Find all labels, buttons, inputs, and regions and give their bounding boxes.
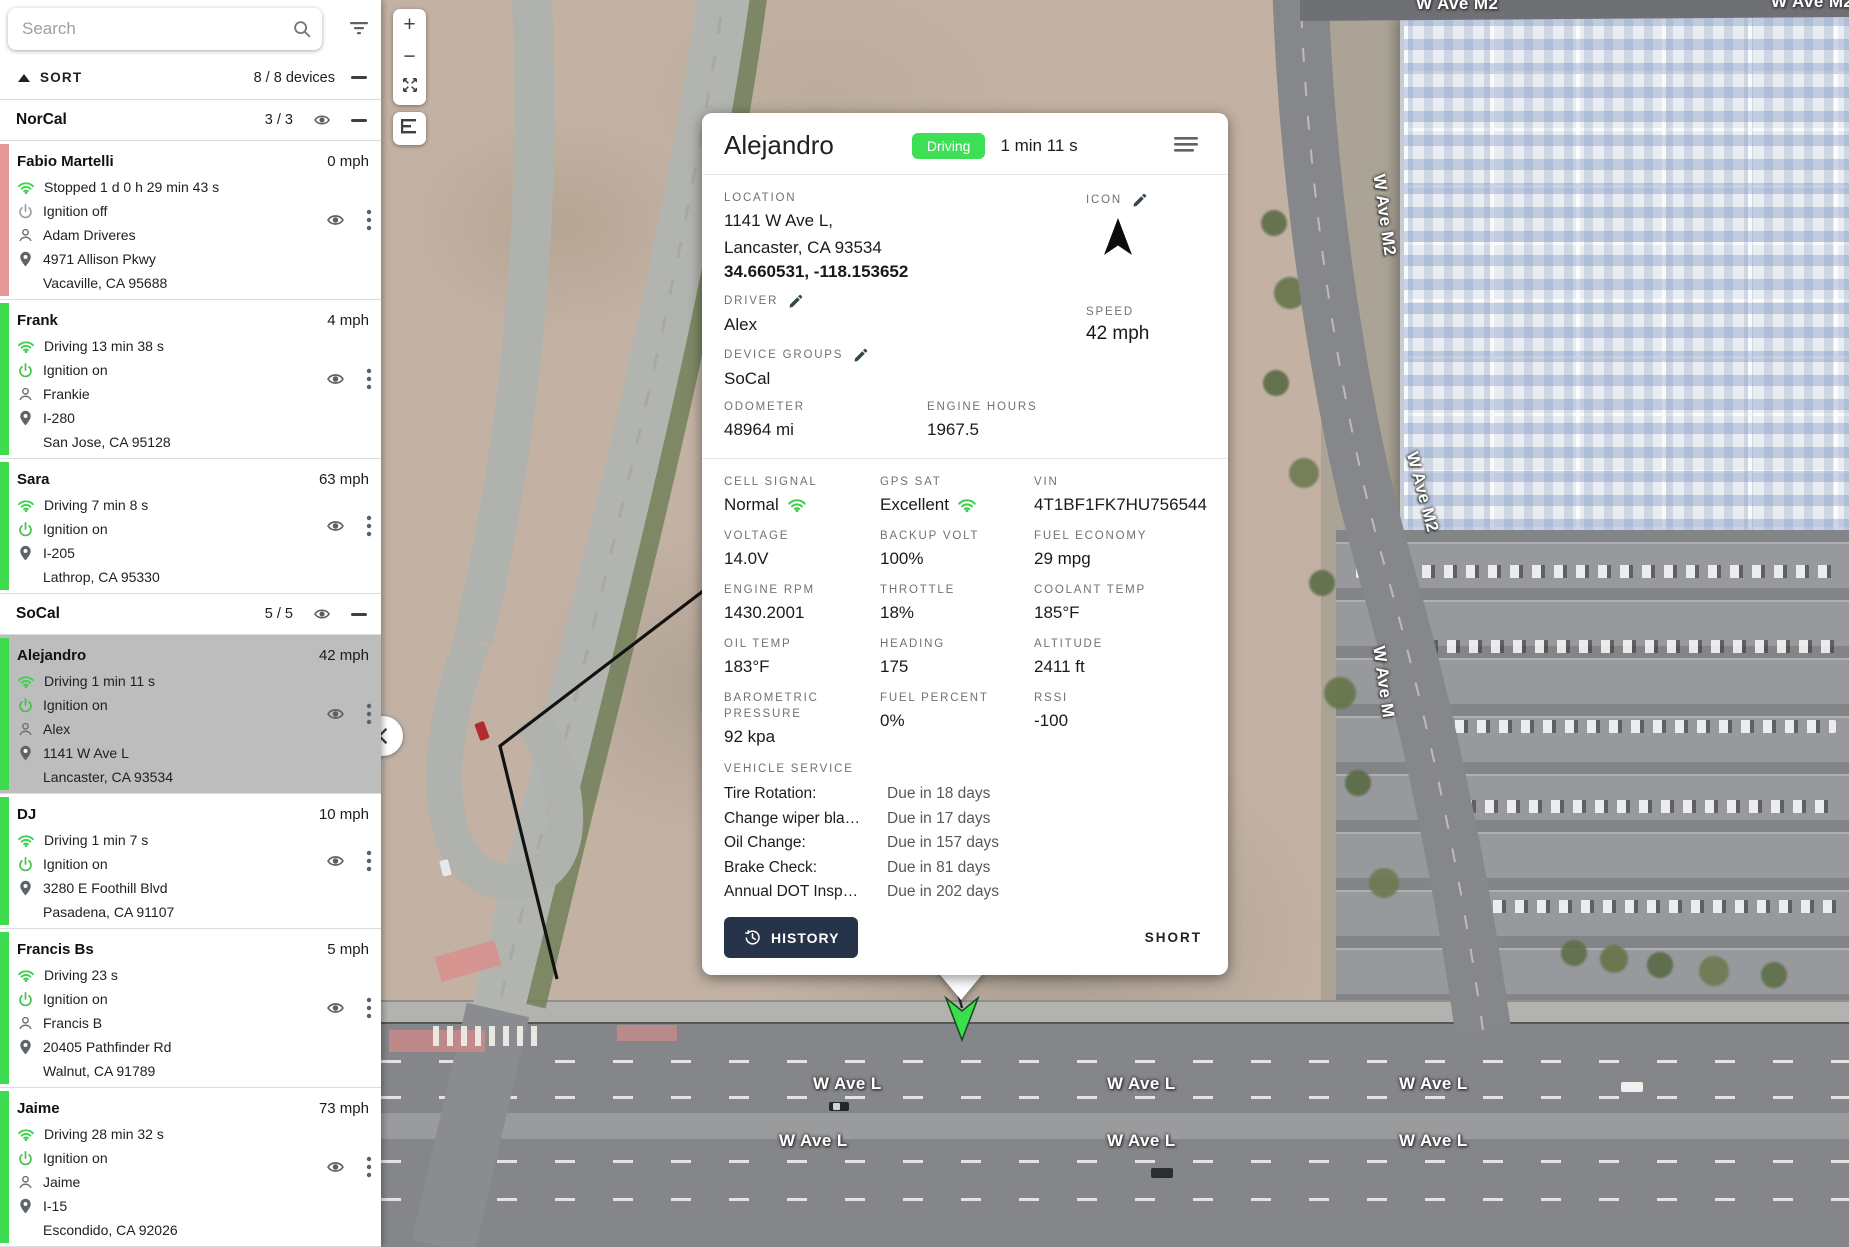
stat-label: FUEL ECONOMY [1034, 528, 1164, 544]
edit-pencil-icon[interactable] [1132, 192, 1148, 208]
group-name: NorCal [16, 111, 265, 129]
ignition-power-icon [17, 1150, 34, 1167]
card-right-column: ICON SPEED 42 mph [1086, 192, 1198, 345]
service-due: Due in 17 days [887, 807, 1202, 832]
status-color-bar [0, 638, 9, 790]
stat-value: 0% [880, 711, 905, 731]
telemetry-stat: FUEL PERCENT 0% [880, 690, 1034, 747]
device-address-line1: 1141 W Ave L [43, 741, 129, 765]
stat-value: 183°F [724, 657, 770, 677]
road-label: W Ave M2 [1368, 173, 1399, 257]
telemetry-stat: ALTITUDE 2411 ft [1034, 636, 1207, 677]
device-visibility-eye-icon[interactable] [324, 1159, 347, 1176]
stat-value: Excellent [880, 495, 949, 515]
telemetry-stat: HEADING 175 [880, 636, 1034, 677]
driver-person-icon [17, 1174, 34, 1191]
device-address-line1: I-15 [43, 1194, 67, 1218]
search-bar-area [0, 0, 381, 56]
stat-label: HEADING [880, 636, 1010, 652]
telemetry-stat: FUEL ECONOMY 29 mpg [1034, 528, 1207, 569]
road-label: W Ave M2 [1771, 0, 1849, 12]
device-name: Fabio Martelli [17, 153, 114, 170]
road-label: W Ave M2 [1416, 0, 1498, 14]
device-driver-name: Jaime [43, 1170, 80, 1194]
status-color-bar [0, 1091, 9, 1243]
history-button[interactable]: HISTORY [724, 917, 858, 958]
device-status-text: Driving 1 min 11 s [44, 669, 155, 693]
road-label: W Ave L [1107, 1074, 1176, 1094]
device-name: Francis Bs [17, 941, 94, 958]
stat-value: -100 [1034, 711, 1068, 731]
odometer-label: ODOMETER [724, 401, 805, 413]
device-menu-kebab-icon[interactable] [366, 703, 372, 725]
device-status-text: Driving 1 min 7 s [44, 828, 148, 852]
sort-header: SORT 8 / 8 devices [0, 56, 381, 100]
card-header: Alejandro Driving 1 min 11 s [702, 113, 1228, 174]
device-groups-value: SoCal [724, 367, 1064, 390]
device-address-line2: Lancaster, CA 93534 [43, 765, 173, 789]
stat-value: 175 [880, 657, 908, 677]
telemetry-stat: ENGINE RPM 1430.2001 [724, 582, 880, 623]
device-speed: 10 mph [319, 802, 369, 828]
device-driver-name: Adam Driveres [43, 223, 136, 247]
device-address-line1: I-280 [43, 406, 75, 430]
device-speed: 63 mph [319, 467, 369, 493]
device-row[interactable]: Alejandro 42 mph Driving 1 min 11 s Igni… [0, 635, 381, 794]
service-name: Tire Rotation: [724, 782, 887, 807]
device-driver-name: Frankie [43, 382, 90, 406]
stat-label: THROTTLE [880, 582, 1010, 598]
wifi-icon [957, 497, 977, 513]
location-pin-icon [17, 744, 34, 762]
device-speed: 73 mph [319, 1096, 369, 1122]
vehicle-heading-arrow-icon [1100, 215, 1136, 261]
vehicle-title: Alejandro [724, 130, 834, 161]
group-name: SoCal [16, 605, 265, 623]
device-speed: 42 mph [319, 643, 369, 669]
location-pin-icon [17, 250, 34, 268]
stat-label: RSSI [1034, 690, 1164, 706]
device-visibility-eye-icon[interactable] [324, 1000, 347, 1017]
stat-value: 29 mpg [1034, 549, 1091, 569]
device-name: DJ [17, 806, 36, 823]
device-address-line2: San Jose, CA 95128 [43, 430, 171, 454]
sort-button[interactable]: SORT [40, 70, 254, 85]
card-menu-button[interactable] [1168, 130, 1204, 161]
odometer-engine-hours-row: ODOMETER 48964 mi ENGINE HOURS 1967.5 [724, 401, 1202, 441]
location-coordinates: 34.660531, -118.153652 [724, 262, 1064, 282]
edit-pencil-icon[interactable] [788, 293, 804, 309]
device-address-line2: Walnut, CA 91789 [43, 1059, 155, 1083]
device-menu-kebab-icon[interactable] [366, 850, 372, 872]
telemetry-stat: RSSI -100 [1034, 690, 1207, 747]
device-ignition-text: Ignition on [43, 852, 108, 876]
road-label: W Ave L [1399, 1074, 1468, 1094]
stat-value: 4T1BF1FK7HU756544 [1034, 495, 1207, 515]
zoom-out-button[interactable]: − [393, 41, 426, 73]
search-icon[interactable] [291, 18, 313, 40]
group-count: 3 / 3 [265, 112, 293, 128]
driver-field: DRIVER Alex [724, 293, 1064, 336]
ignition-power-icon [17, 203, 34, 220]
device-address-line2: Escondido, CA 92026 [43, 1218, 178, 1242]
ignition-power-icon [17, 362, 34, 379]
service-name: Change wiper bla… [724, 807, 887, 832]
stat-value: 18% [880, 603, 914, 623]
device-group-header[interactable]: SoCal 5 / 5 [0, 594, 381, 635]
ignition-power-icon [17, 856, 34, 873]
status-color-bar [0, 144, 9, 296]
ruler-icon [400, 117, 419, 139]
telemetry-stat: GPS SAT Excellent [880, 474, 1034, 515]
service-due: Due in 18 days [887, 782, 1202, 807]
location-pin-icon [17, 879, 34, 897]
fullscreen-button[interactable] [393, 73, 426, 105]
device-status-text: Driving 28 min 32 s [44, 1122, 164, 1146]
device-menu-kebab-icon[interactable] [366, 1156, 372, 1178]
device-row[interactable]: Frank 4 mph Driving 13 min 38 s Ignition… [0, 300, 381, 459]
wifi-icon [17, 498, 35, 513]
short-link[interactable]: SHORT [1145, 930, 1202, 945]
device-address-line2: Vacaville, CA 95688 [43, 271, 167, 295]
wifi-icon [17, 180, 35, 195]
telemetry-stat: THROTTLE 18% [880, 582, 1034, 623]
device-name: Jaime [17, 1100, 60, 1117]
edit-pencil-icon[interactable] [853, 347, 869, 363]
device-address-line1: 4971 Allison Pkwy [43, 247, 156, 271]
group-visibility-eye-icon[interactable] [311, 112, 333, 128]
vehicle-service-section: VEHICLE SERVICE Tire Rotation: Due in 18… [724, 763, 1202, 905]
ignition-power-icon [17, 697, 34, 714]
ignition-power-icon [17, 991, 34, 1008]
wifi-icon [17, 833, 35, 848]
device-ignition-text: Ignition on [43, 987, 108, 1011]
device-ignition-text: Ignition on [43, 1146, 108, 1170]
device-name: Sara [17, 471, 50, 488]
status-duration: 1 min 11 s [1000, 136, 1077, 156]
service-due: Due in 81 days [887, 856, 1202, 881]
stat-label: COOLANT TEMP [1034, 582, 1164, 598]
vehicle-detail-card: Alejandro Driving 1 min 11 s ICON SPEED … [702, 113, 1228, 975]
device-groups-field: DEVICE GROUPS SoCal [724, 347, 1064, 390]
device-menu-kebab-icon[interactable] [366, 515, 372, 537]
device-row[interactable]: Jaime 73 mph Driving 28 min 32 s Ignitio… [0, 1088, 381, 1247]
card-body: ICON SPEED 42 mph LOCATION 1141 W Ave L,… [702, 175, 1228, 905]
stat-label: GPS SAT [880, 474, 1010, 490]
device-row[interactable]: Fabio Martelli 0 mph Stopped 1 d 0 h 29 … [0, 141, 381, 300]
card-footer: HISTORY SHORT [724, 917, 1202, 958]
device-menu-kebab-icon[interactable] [366, 368, 372, 390]
device-groups-label: DEVICE GROUPS [724, 349, 843, 361]
driver-value: Alex [724, 313, 1064, 336]
device-menu-kebab-icon[interactable] [366, 209, 372, 231]
driver-person-icon [17, 386, 34, 403]
stat-value: 1430.2001 [724, 603, 804, 623]
device-status-text: Stopped 1 d 0 h 29 min 43 s [44, 175, 219, 199]
status-color-bar [0, 462, 9, 590]
device-ignition-text: Ignition on [43, 358, 108, 382]
wifi-icon [17, 968, 35, 983]
device-speed: 5 mph [327, 937, 369, 963]
fleet-tracking-app: W Ave LW Ave LW Ave LW Ave LW Ave LW Ave… [0, 0, 1849, 1247]
telemetry-stat: BACKUP VOLT 100% [880, 528, 1034, 569]
device-name: Frank [17, 312, 58, 329]
stat-value: 14.0V [724, 549, 768, 569]
service-name: Brake Check: [724, 856, 887, 881]
road-label: W Ave M2 [1402, 450, 1443, 535]
stat-value: 100% [880, 549, 923, 569]
device-visibility-eye-icon[interactable] [324, 371, 347, 388]
telemetry-stat: CELL SIGNAL Normal [724, 474, 880, 515]
stat-label: BACKUP VOLT [880, 528, 1010, 544]
device-visibility-eye-icon[interactable] [324, 212, 347, 229]
road-label: W Ave L [813, 1074, 882, 1094]
stat-label: CELL SIGNAL [724, 474, 854, 490]
icon-field-label: ICON [1086, 192, 1198, 208]
vehicle-service-row: Oil Change: Due in 157 days [724, 831, 1202, 856]
stat-label: BAROMETRIC PRESSURE [724, 690, 854, 722]
device-row[interactable]: Sara 63 mph Driving 7 min 8 s Ignition o… [0, 459, 381, 594]
stat-label: ENGINE RPM [724, 582, 854, 598]
service-name: Annual DOT Insp… [724, 880, 887, 905]
telemetry-stat: BAROMETRIC PRESSURE 92 kpa [724, 690, 880, 747]
group-count: 5 / 5 [265, 606, 293, 622]
fullscreen-arrows-icon [400, 75, 420, 95]
engine-hours-value: 1967.5 [927, 418, 1202, 441]
device-driver-name: Alex [43, 717, 70, 741]
driving-status-badge: Driving [912, 133, 986, 159]
stat-label: VOLTAGE [724, 528, 854, 544]
filter-funnel-icon [347, 18, 371, 38]
device-list: NorCal 3 / 3 Fabio Martelli 0 mph Stoppe… [0, 100, 381, 1247]
wifi-icon [787, 497, 807, 513]
engine-hours-label: ENGINE HOURS [927, 401, 1037, 413]
device-status-text: Driving 7 min 8 s [44, 493, 148, 517]
device-row[interactable]: Francis Bs 5 mph Driving 23 s Ignition o… [0, 929, 381, 1088]
location-label: LOCATION [724, 192, 796, 204]
filter-button[interactable] [345, 16, 373, 43]
device-address-line1: I-205 [43, 541, 75, 565]
telemetry-stats-grid: CELL SIGNAL Normal GPS SAT Excellent VIN… [724, 474, 1202, 747]
road-label: W Ave M [1368, 645, 1398, 719]
group-visibility-eye-icon[interactable] [311, 606, 333, 622]
device-address-line1: 3280 E Foothill Blvd [43, 876, 168, 900]
device-menu-kebab-icon[interactable] [366, 997, 372, 1019]
device-speed: 0 mph [327, 149, 369, 175]
road-label: W Ave L [779, 1131, 848, 1151]
wifi-icon [17, 674, 35, 689]
location-pin-icon [17, 1038, 34, 1056]
wifi-icon [17, 1127, 35, 1142]
vehicle-service-row: Annual DOT Insp… Due in 202 days [724, 880, 1202, 905]
device-visibility-eye-icon[interactable] [324, 706, 347, 723]
vehicle-service-list: Tire Rotation: Due in 18 days Change wip… [724, 782, 1202, 905]
location-pin-icon [17, 544, 34, 562]
driver-person-icon [17, 721, 34, 738]
hamburger-menu-icon [1172, 134, 1200, 154]
vehicle-service-row: Brake Check: Due in 81 days [724, 856, 1202, 881]
device-ignition-text: Ignition on [43, 517, 108, 541]
road-label: W Ave L [1107, 1131, 1176, 1151]
stat-label: OIL TEMP [724, 636, 854, 652]
telemetry-stat: COOLANT TEMP 185°F [1034, 582, 1207, 623]
divider [702, 458, 1228, 459]
telemetry-stat: OIL TEMP 183°F [724, 636, 880, 677]
vehicle-service-row: Tire Rotation: Due in 18 days [724, 782, 1202, 807]
collapse-all-minus-icon[interactable] [351, 76, 367, 79]
device-address-line2: Pasadena, CA 91107 [43, 900, 174, 924]
device-group-header[interactable]: NorCal 3 / 3 [0, 100, 381, 141]
location-field: LOCATION 1141 W Ave L, Lancaster, CA 935… [724, 192, 1064, 282]
zoom-in-button[interactable]: + [393, 9, 426, 41]
wifi-icon [17, 339, 35, 354]
driver-person-icon [17, 227, 34, 244]
vehicle-marker[interactable] [938, 993, 986, 1043]
ignition-power-icon [17, 521, 34, 538]
vehicle-service-label: VEHICLE SERVICE [724, 763, 854, 775]
driver-person-icon [17, 1015, 34, 1032]
status-color-bar [0, 932, 9, 1084]
measure-scale-button[interactable] [393, 112, 426, 145]
search-input[interactable] [8, 8, 322, 50]
device-speed: 4 mph [327, 308, 369, 334]
device-visibility-eye-icon[interactable] [324, 853, 347, 870]
road-label: W Ave L [1399, 1131, 1468, 1151]
device-name: Alejandro [17, 647, 86, 664]
device-visibility-eye-icon[interactable] [324, 518, 347, 535]
service-name: Oil Change: [724, 831, 887, 856]
device-ignition-text: Ignition off [43, 199, 107, 223]
service-due: Due in 157 days [887, 831, 1202, 856]
device-ignition-text: Ignition on [43, 693, 108, 717]
device-driver-name: Francis B [43, 1011, 102, 1035]
speed-value: 42 mph [1086, 323, 1198, 345]
stat-label: FUEL PERCENT [880, 690, 1010, 706]
device-count: 8 / 8 devices [254, 70, 335, 86]
location-pin-icon [17, 409, 34, 427]
vehicle-service-row: Change wiper bla… Due in 17 days [724, 807, 1202, 832]
device-address-line2: Lathrop, CA 95330 [43, 565, 160, 589]
device-status-text: Driving 13 min 38 s [44, 334, 164, 358]
device-address-line1: 20405 Pathfinder Rd [43, 1035, 171, 1059]
status-color-bar [0, 797, 9, 925]
odometer-value: 48964 mi [724, 418, 927, 441]
device-status-text: Driving 23 s [44, 963, 118, 987]
sort-ascending-triangle-icon[interactable] [18, 74, 30, 82]
stat-value: Normal [724, 495, 779, 515]
telemetry-stat: VOLTAGE 14.0V [724, 528, 880, 569]
location-pin-icon [17, 1197, 34, 1215]
map-zoom-panel: + − [393, 9, 426, 105]
speed-label: SPEED [1086, 306, 1134, 318]
stat-value: 92 kpa [724, 727, 775, 747]
device-sidebar: SORT 8 / 8 devices NorCal 3 / 3 Fabio Ma… [0, 0, 381, 1247]
location-line2: Lancaster, CA 93534 [724, 236, 1064, 259]
stat-value: 2411 ft [1034, 657, 1085, 677]
stat-label: ALTITUDE [1034, 636, 1164, 652]
status-color-bar [0, 303, 9, 455]
telemetry-stat: VIN 4T1BF1FK7HU756544 [1034, 474, 1207, 515]
group-collapse-minus-icon[interactable] [351, 119, 367, 122]
history-clock-icon [743, 928, 762, 947]
service-due: Due in 202 days [887, 880, 1202, 905]
speed-field: SPEED 42 mph [1086, 306, 1198, 345]
stat-label: VIN [1034, 474, 1164, 490]
group-collapse-minus-icon[interactable] [351, 613, 367, 616]
history-button-label: HISTORY [771, 930, 839, 946]
location-line1: 1141 W Ave L, [724, 209, 1064, 232]
driver-label: DRIVER [724, 295, 778, 307]
stat-value: 185°F [1034, 603, 1080, 623]
device-row[interactable]: DJ 10 mph Driving 1 min 7 s Ignition on … [0, 794, 381, 929]
